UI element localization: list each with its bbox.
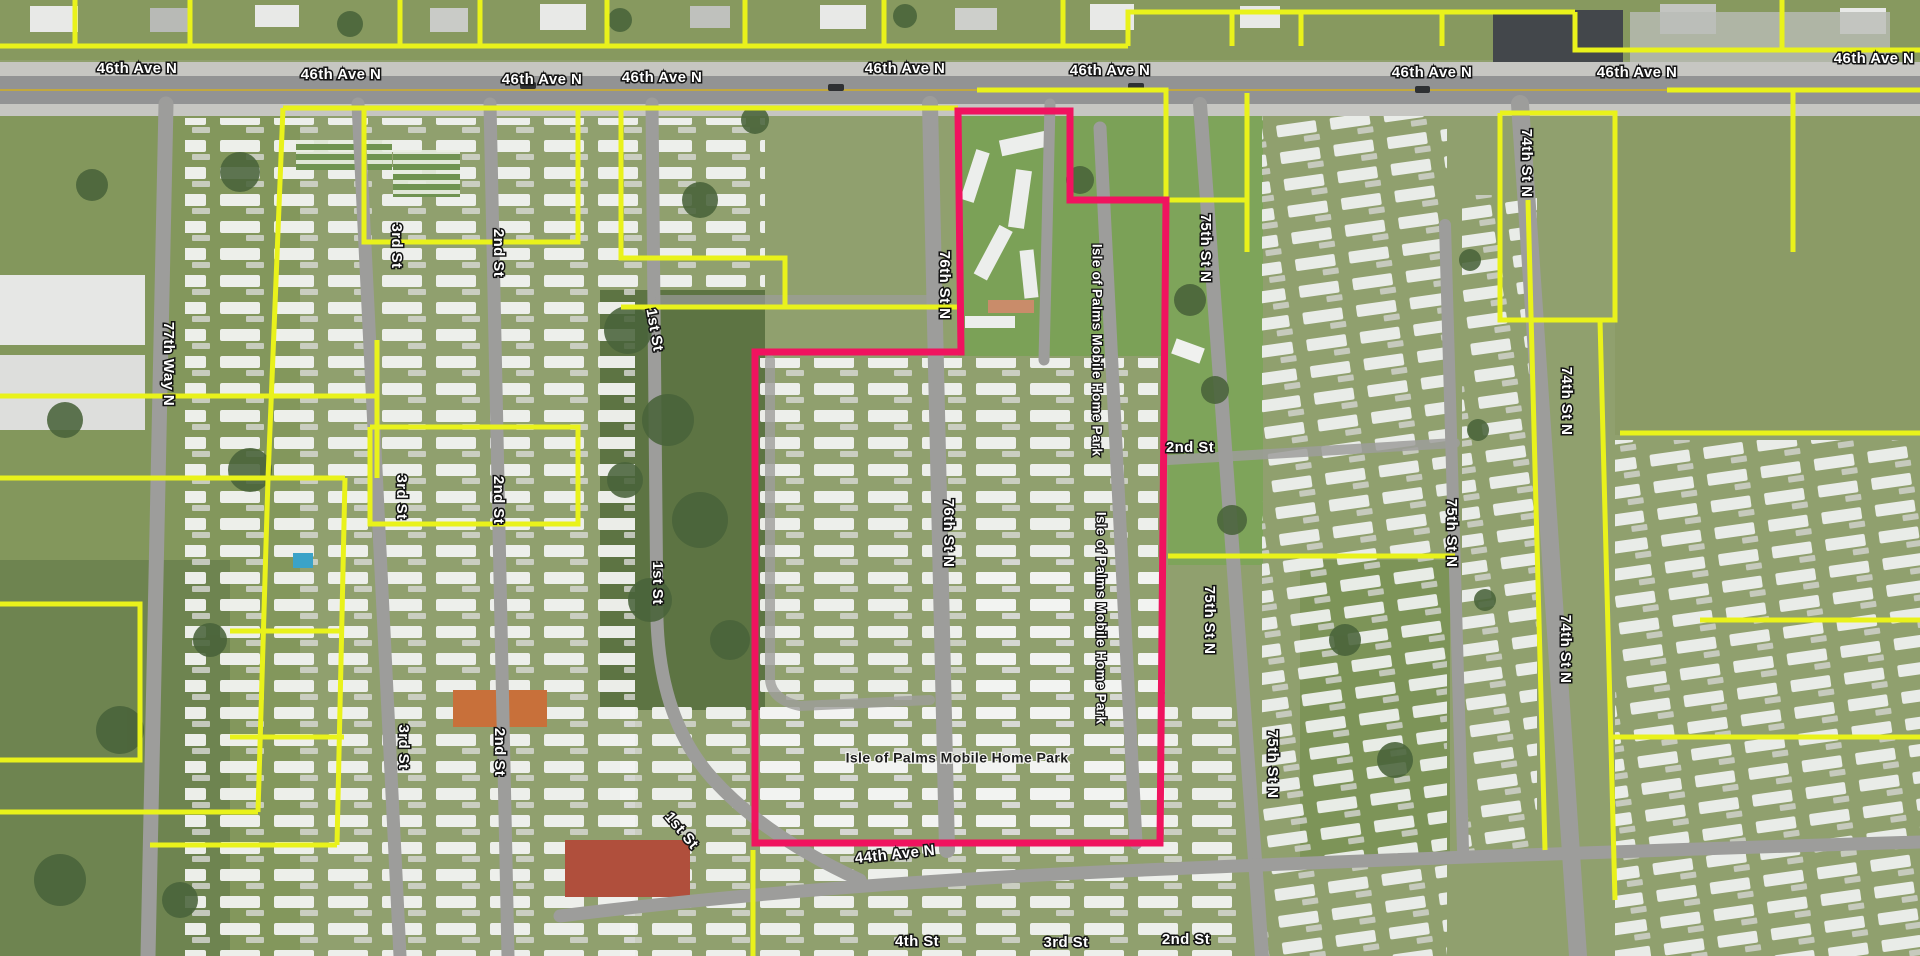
street-label-2nd-st: 2nd St bbox=[1162, 931, 1210, 948]
aerial-map: 46th Ave N 46th Ave N 46th Ave N 46th Av… bbox=[0, 0, 1920, 956]
street-label-46th-ave-n: 46th Ave N bbox=[622, 69, 702, 86]
swimming-pool bbox=[293, 553, 313, 568]
street-label-4th-st: 4th St bbox=[895, 933, 939, 950]
street-label-46th-ave-n: 46th Ave N bbox=[1070, 62, 1150, 79]
street-label-75th-st-n: 75th St N bbox=[1264, 730, 1281, 799]
street-label-75th-st-n: 75th St N bbox=[1443, 499, 1460, 568]
street-label-75th-st-n: 75th St N bbox=[1201, 586, 1218, 655]
street-label-75th-st-n: 75th St N bbox=[1197, 214, 1214, 283]
park-name-label-vertical: Isle of Palms Mobile Home Park bbox=[1089, 244, 1104, 457]
street-label-2nd-st: 2nd St bbox=[1166, 439, 1214, 456]
street-label-74th-st-n: 74th St N bbox=[1558, 367, 1575, 436]
street-label-76th-st-n: 76th St N bbox=[940, 499, 957, 568]
street-label-2nd-st: 2nd St bbox=[490, 229, 507, 277]
park-name-label-horizontal: Isle of Palms Mobile Home Park bbox=[846, 750, 1069, 766]
red-roof-building bbox=[565, 840, 690, 897]
street-label-3rd-st: 3rd St bbox=[1044, 934, 1089, 951]
street-label-46th-ave-n: 46th Ave N bbox=[1392, 64, 1472, 81]
street-label-76th-st-n: 76th St N bbox=[936, 251, 953, 320]
street-label-3rd-st: 3rd St bbox=[388, 224, 405, 269]
street-label-46th-ave-n: 46th Ave N bbox=[1597, 64, 1677, 81]
street-label-46th-ave-n: 46th Ave N bbox=[502, 71, 582, 88]
map-canvas[interactable]: 46th Ave N 46th Ave N 46th Ave N 46th Av… bbox=[0, 0, 1920, 956]
street-label-46th-ave-n: 46th Ave N bbox=[97, 60, 177, 77]
street-label-2nd-st: 2nd St bbox=[491, 728, 508, 776]
street-label-3rd-st: 3rd St bbox=[395, 725, 412, 770]
street-label-46th-ave-n: 46th Ave N bbox=[301, 66, 381, 83]
street-label-46th-ave-n: 46th Ave N bbox=[865, 60, 945, 77]
street-label-77th-way-n: 77th Way N bbox=[160, 322, 177, 406]
park-name-label-vertical: Isle of Palms Mobile Home Park bbox=[1093, 512, 1108, 725]
street-label-1st-st: 1st St bbox=[649, 561, 666, 604]
street-label-74th-st-n: 74th St N bbox=[1557, 615, 1574, 684]
street-label-46th-ave-n: 46th Ave N bbox=[1834, 50, 1914, 67]
street-label-74th-st-n: 74th St N bbox=[1518, 129, 1535, 198]
street-label-2nd-st: 2nd St bbox=[490, 476, 507, 524]
street-label-3rd-st: 3rd St bbox=[393, 475, 410, 520]
